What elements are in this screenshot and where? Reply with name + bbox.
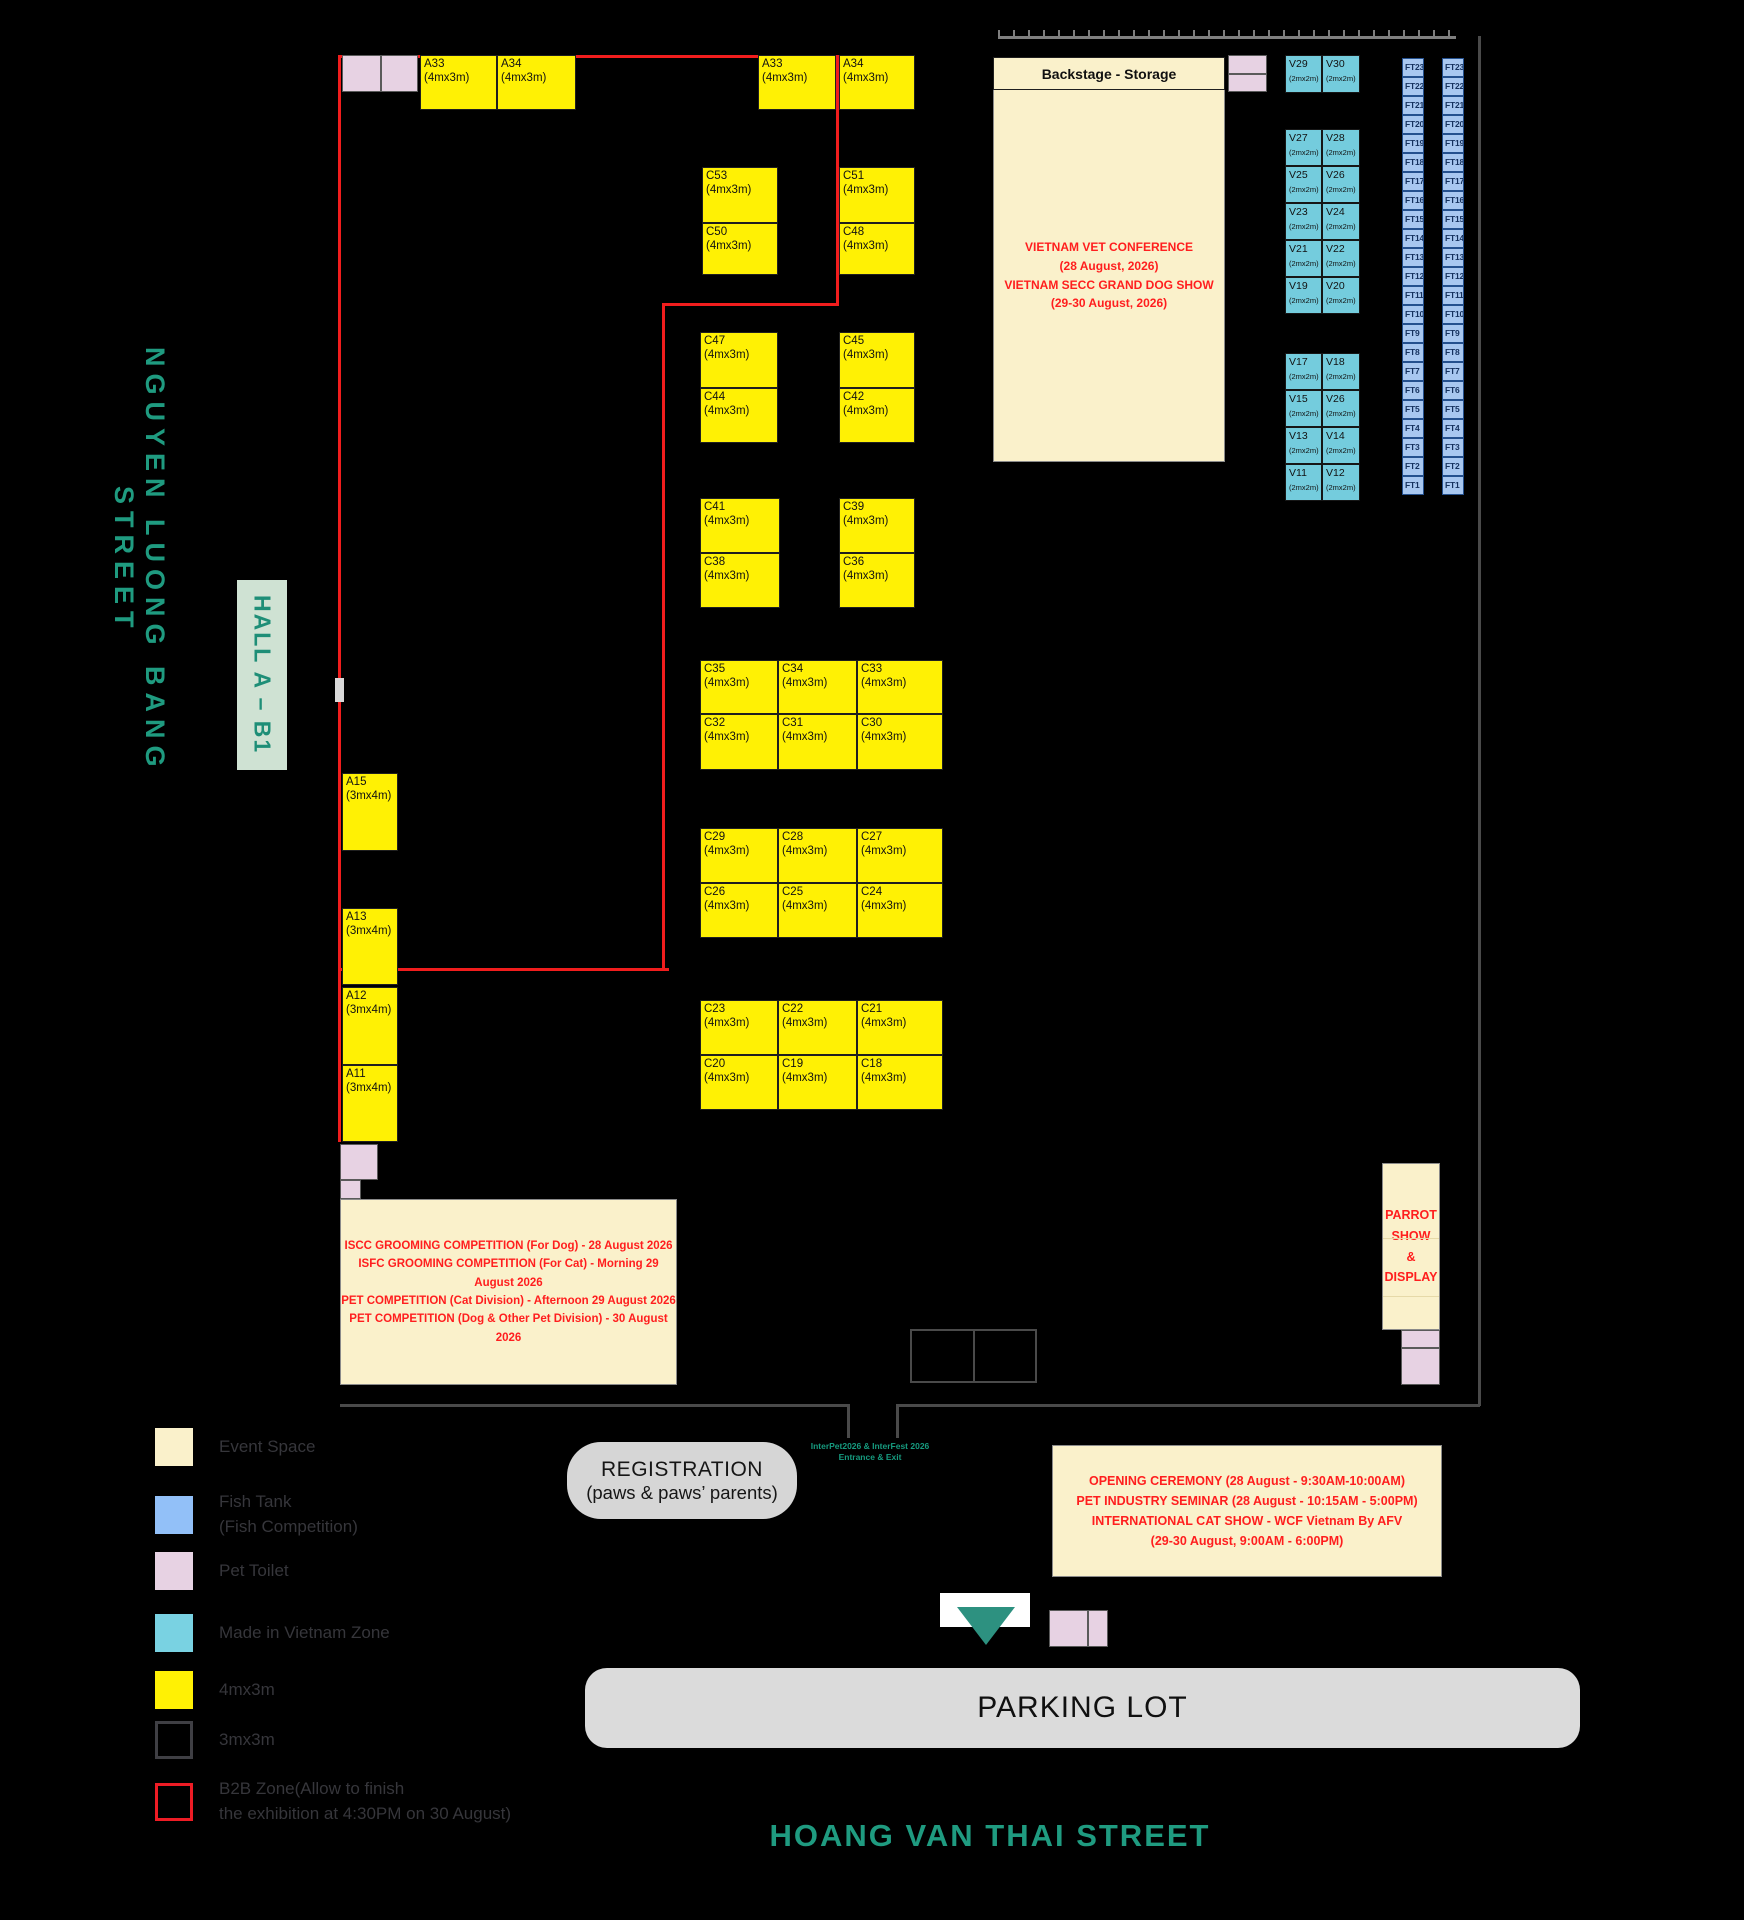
fish-tank-FT13: FT13 xyxy=(1402,248,1424,267)
booth-C31: C31(4mx3m) xyxy=(778,714,857,770)
fish-tank-FT12: FT12 xyxy=(1442,267,1464,286)
booth-C21: C21(4mx3m) xyxy=(857,1000,943,1055)
wall xyxy=(898,1404,1480,1407)
booth-A34: A34(4mx3m) xyxy=(497,55,576,110)
booth-dimension: (2mx2m) xyxy=(1289,296,1320,305)
booth-dimension: (4mx3m) xyxy=(782,731,855,745)
booth-id: A34 xyxy=(501,58,574,72)
legend-item: Pet Toilet xyxy=(155,1552,289,1590)
legend-label: Pet Toilet xyxy=(219,1559,289,1584)
booth-dimension: (4mx3m) xyxy=(861,845,941,859)
booth-V30: V30(2mx2m) xyxy=(1322,55,1360,93)
booth-dimension: (4mx3m) xyxy=(704,349,776,363)
booth-id: V20 xyxy=(1326,280,1358,293)
legend-item: Made in Vietnam Zone xyxy=(155,1614,390,1652)
booth-id: V29 xyxy=(1289,58,1320,71)
booth-id: A34 xyxy=(843,58,913,72)
booth-dimension: (4mx3m) xyxy=(762,72,834,86)
booth-id: A33 xyxy=(762,58,834,72)
booth-C35: C35(4mx3m) xyxy=(700,660,778,714)
booth-V12: V12(2mx2m) xyxy=(1322,464,1360,501)
fish-tank-FT10: FT10 xyxy=(1442,305,1464,324)
booth-C50: C50(4mx3m) xyxy=(702,223,778,275)
booth-dimension: (2mx2m) xyxy=(1289,148,1320,157)
entrance-arrow-icon xyxy=(957,1607,1015,1645)
booth-id: V12 xyxy=(1326,467,1358,480)
booth-dimension: (4mx3m) xyxy=(704,677,776,691)
wall xyxy=(896,1404,899,1438)
booth-dimension: (2mx2m) xyxy=(1289,409,1320,418)
booth-id: V23 xyxy=(1289,206,1320,219)
booth-A33: A33(4mx3m) xyxy=(758,55,836,110)
fish-tank-FT6: FT6 xyxy=(1402,381,1424,400)
booth-dimension: (4mx3m) xyxy=(782,1017,855,1031)
booth-dimension: (4mx3m) xyxy=(782,845,855,859)
booth-dimension: (4mx3m) xyxy=(843,72,913,86)
booth-C27: C27(4mx3m) xyxy=(857,828,943,883)
booth-dimension: (4mx3m) xyxy=(861,731,941,745)
fish-tank-FT5: FT5 xyxy=(1442,400,1464,419)
booth-V18: V18(2mx2m) xyxy=(1322,353,1360,390)
booth-dimension: (2mx2m) xyxy=(1326,483,1358,492)
entrance-booth-cell xyxy=(912,1331,975,1381)
booth-dimension: (2mx2m) xyxy=(1326,74,1358,83)
fish-tank-FT4: FT4 xyxy=(1402,419,1424,438)
booth-A15: A15(3mx4m) xyxy=(342,773,398,851)
booth-dimension: (2mx2m) xyxy=(1289,446,1320,455)
booth-id: C31 xyxy=(782,717,855,731)
legend-swatch xyxy=(155,1783,193,1821)
legend-swatch xyxy=(155,1671,193,1709)
booth-dimension: (4mx3m) xyxy=(704,900,776,914)
booth-id: V22 xyxy=(1326,243,1358,256)
booth-id: V28 xyxy=(1326,132,1358,145)
booth-dimension: (2mx2m) xyxy=(1326,372,1358,381)
booth-V28: V28(2mx2m) xyxy=(1322,129,1360,166)
fish-tank-FT1: FT1 xyxy=(1442,476,1464,495)
pet-toilet xyxy=(1088,1610,1108,1647)
fish-tank-FT21: FT21 xyxy=(1402,96,1424,115)
entrance-booth-cell xyxy=(975,1331,1035,1381)
booth-id: C25 xyxy=(782,886,855,900)
street-bottom-label: HOANG VAN THAI STREET xyxy=(700,1818,1280,1854)
booth-C36: C36(4mx3m) xyxy=(839,553,915,608)
booth-dimension: (2mx2m) xyxy=(1289,372,1320,381)
fish-tank-FT17: FT17 xyxy=(1442,172,1464,191)
fish-tank-FT5: FT5 xyxy=(1402,400,1424,419)
booth-dimension: (2mx2m) xyxy=(1326,296,1358,305)
booth-id: C42 xyxy=(843,391,913,405)
booth-id: V15 xyxy=(1289,393,1320,406)
fish-tank-FT20: FT20 xyxy=(1402,115,1424,134)
fish-tank-FT7: FT7 xyxy=(1402,362,1424,381)
booth-dimension: (4mx3m) xyxy=(704,515,778,529)
booth-C38: C38(4mx3m) xyxy=(700,553,780,608)
fish-tank-FT6: FT6 xyxy=(1442,381,1464,400)
booth-dimension: (4mx3m) xyxy=(782,1072,855,1086)
booth-C41: C41(4mx3m) xyxy=(700,498,780,553)
fish-tank-FT22: FT22 xyxy=(1402,77,1424,96)
wall xyxy=(340,1404,849,1407)
booth-V19: V19(2mx2m) xyxy=(1285,277,1322,314)
registration-subtitle: (paws & paws’ parents) xyxy=(586,1482,778,1504)
fish-tank-FT16: FT16 xyxy=(1402,191,1424,210)
booth-dimension: (2mx2m) xyxy=(1326,409,1358,418)
booth-id: V26 xyxy=(1326,169,1358,182)
booth-id: C23 xyxy=(704,1003,776,1017)
booth-V14: V14(2mx2m) xyxy=(1322,427,1360,464)
booth-id: C18 xyxy=(861,1058,941,1072)
legend-item: B2B Zone(Allow to finish the exhibition … xyxy=(155,1777,511,1826)
fish-tank-FT11: FT11 xyxy=(1402,286,1424,305)
booth-id: C22 xyxy=(782,1003,855,1017)
legend-label: 3mx3m xyxy=(219,1728,275,1753)
parking-lot: PARKING LOT xyxy=(585,1668,1580,1748)
booth-id: C30 xyxy=(861,717,941,731)
fish-tank-FT18: FT18 xyxy=(1402,153,1424,172)
booth-V27: V27(2mx2m) xyxy=(1285,129,1322,166)
legend-swatch xyxy=(155,1496,193,1534)
booth-C34: C34(4mx3m) xyxy=(778,660,857,714)
booth-id: A15 xyxy=(346,776,396,790)
booth-id: C53 xyxy=(706,170,776,184)
booth-dimension: (3mx4m) xyxy=(346,1082,396,1096)
booth-dimension: (4mx3m) xyxy=(424,72,495,86)
entrance-exit-label: InterPet2026 & InterFest 2026 Entrance &… xyxy=(805,1441,935,1463)
booth-id: V21 xyxy=(1289,243,1320,256)
divider xyxy=(1383,1296,1439,1297)
grooming-competition-area: ISCC GROOMING COMPETITION (For Dog) - 28… xyxy=(340,1199,677,1385)
booth-C23: C23(4mx3m) xyxy=(700,1000,778,1055)
booth-C44: C44(4mx3m) xyxy=(700,388,778,443)
booth-id: C47 xyxy=(704,335,776,349)
pet-toilet xyxy=(1401,1348,1440,1385)
wall xyxy=(1478,36,1481,1406)
booth-id: V26 xyxy=(1326,393,1358,406)
fish-tank-FT7: FT7 xyxy=(1442,362,1464,381)
booth-dimension: (4mx3m) xyxy=(861,1072,941,1086)
booth-id: A11 xyxy=(346,1068,396,1082)
booth-V15: V15(2mx2m) xyxy=(1285,390,1322,427)
booth-dimension: (4mx3m) xyxy=(706,240,776,254)
booth-V22: V22(2mx2m) xyxy=(1322,240,1360,277)
opening-ceremony-area: OPENING CEREMONY (28 August - 9:30AM-10:… xyxy=(1052,1445,1442,1577)
fish-tank-FT23: FT23 xyxy=(1402,58,1424,77)
booth-A33: A33(4mx3m) xyxy=(420,55,497,110)
booth-dimension: (4mx3m) xyxy=(704,1017,776,1031)
booth-dimension: (4mx3m) xyxy=(704,1072,776,1086)
booth-dimension: (2mx2m) xyxy=(1289,222,1320,231)
booth-C51: C51(4mx3m) xyxy=(839,167,915,223)
booth-id: C39 xyxy=(843,501,913,515)
booth-dimension: (4mx3m) xyxy=(861,677,941,691)
booth-id: V17 xyxy=(1289,356,1320,369)
fish-tank-FT9: FT9 xyxy=(1402,324,1424,343)
booth-dimension: (4mx3m) xyxy=(861,900,941,914)
booth-C24: C24(4mx3m) xyxy=(857,883,943,938)
legend-label: Made in Vietnam Zone xyxy=(219,1621,390,1646)
booth-dimension: (4mx3m) xyxy=(704,570,778,584)
booth-dimension: (4mx3m) xyxy=(704,845,776,859)
booth-id: A33 xyxy=(424,58,495,72)
booth-C28: C28(4mx3m) xyxy=(778,828,857,883)
booth-id: C35 xyxy=(704,663,776,677)
fish-tank-FT19: FT19 xyxy=(1442,134,1464,153)
booth-id: A12 xyxy=(346,990,396,1004)
parrot-show-label: PARROT SHOW & DISPLAY xyxy=(1384,1205,1437,1288)
b2b-zone-line xyxy=(338,55,341,1142)
b2b-zone-line xyxy=(662,303,665,971)
booth-id: V11 xyxy=(1289,467,1320,480)
booth-C39: C39(4mx3m) xyxy=(839,498,915,553)
legend-swatch xyxy=(155,1721,193,1759)
fish-tank-FT14: FT14 xyxy=(1402,229,1424,248)
booth-C19: C19(4mx3m) xyxy=(778,1055,857,1110)
booth-id: C45 xyxy=(843,335,913,349)
registration-desk: REGISTRATION (paws & paws’ parents) xyxy=(567,1442,797,1519)
booth-dimension: (4mx3m) xyxy=(843,240,913,254)
booth-dimension: (4mx3m) xyxy=(782,677,855,691)
booth-V23: V23(2mx2m) xyxy=(1285,203,1322,240)
booth-dimension: (4mx3m) xyxy=(704,731,776,745)
booth-V26: V26(2mx2m) xyxy=(1322,166,1360,203)
fish-tank-FT4: FT4 xyxy=(1442,419,1464,438)
pet-toilet xyxy=(1228,74,1267,92)
fish-tank-FT12: FT12 xyxy=(1402,267,1424,286)
booth-C47: C47(4mx3m) xyxy=(700,332,778,388)
booth-C33: C33(4mx3m) xyxy=(857,660,943,714)
booth-id: C24 xyxy=(861,886,941,900)
booth-dimension: (2mx2m) xyxy=(1326,185,1358,194)
fish-tank-FT16: FT16 xyxy=(1442,191,1464,210)
booth-dimension: (4mx3m) xyxy=(706,184,776,198)
fish-tank-FT9: FT9 xyxy=(1442,324,1464,343)
fish-tank-FT8: FT8 xyxy=(1442,343,1464,362)
booth-id: V27 xyxy=(1289,132,1320,145)
booth-dimension: (4mx3m) xyxy=(861,1017,941,1031)
booth-C42: C42(4mx3m) xyxy=(839,388,915,443)
booth-A12: A12(3mx4m) xyxy=(342,987,398,1065)
booth-id: C36 xyxy=(843,556,913,570)
booth-id: V25 xyxy=(1289,169,1320,182)
booth-id: V19 xyxy=(1289,280,1320,293)
fish-tank-FT14: FT14 xyxy=(1442,229,1464,248)
booth-V13: V13(2mx2m) xyxy=(1285,427,1322,464)
booth-dimension: (2mx2m) xyxy=(1326,259,1358,268)
legend-item: 4mx3m xyxy=(155,1671,275,1709)
booth-id: C27 xyxy=(861,831,941,845)
pet-toilet xyxy=(342,55,381,92)
booth-V20: V20(2mx2m) xyxy=(1322,277,1360,314)
fish-tank-FT20: FT20 xyxy=(1442,115,1464,134)
booth-id: C26 xyxy=(704,886,776,900)
legend-label: 4mx3m xyxy=(219,1678,275,1703)
street-left-label: NGUYEN LUONG BANG STREET xyxy=(118,330,170,790)
registration-title: REGISTRATION xyxy=(601,1458,763,1482)
backstage-storage-box: Backstage - Storage xyxy=(993,57,1225,90)
fish-tank-FT23: FT23 xyxy=(1442,58,1464,77)
exhibition-floor-plan: NGUYEN LUONG BANG STREET HALL A – B1 Bac… xyxy=(0,0,1744,1920)
booth-id: C41 xyxy=(704,501,778,515)
legend-swatch xyxy=(155,1552,193,1590)
booth-A11: A11(3mx4m) xyxy=(342,1065,398,1142)
fish-tank-FT21: FT21 xyxy=(1442,96,1464,115)
booth-dimension: (2mx2m) xyxy=(1289,74,1320,83)
booth-dimension: (4mx3m) xyxy=(843,515,913,529)
booth-V17: V17(2mx2m) xyxy=(1285,353,1322,390)
booth-V25: V25(2mx2m) xyxy=(1285,166,1322,203)
legend-label: Fish Tank (Fish Competition) xyxy=(219,1490,358,1539)
vet-conference-area: VIETNAM VET CONFERENCE (28 August, 2026)… xyxy=(993,90,1225,462)
booth-id: C44 xyxy=(704,391,776,405)
booth-C20: C20(4mx3m) xyxy=(700,1055,778,1110)
fish-tank-FT8: FT8 xyxy=(1402,343,1424,362)
booth-C30: C30(4mx3m) xyxy=(857,714,943,770)
booth-id: C32 xyxy=(704,717,776,731)
booth-dimension: (4mx3m) xyxy=(782,900,855,914)
booth-id: V14 xyxy=(1326,430,1358,443)
booth-dimension: (4mx3m) xyxy=(501,72,574,86)
booth-id: C50 xyxy=(706,226,776,240)
pet-toilet xyxy=(1049,1610,1088,1647)
booth-dimension: (2mx2m) xyxy=(1326,148,1358,157)
pet-toilet xyxy=(1228,55,1267,74)
fish-tank-FT19: FT19 xyxy=(1402,134,1424,153)
b2b-zone-line xyxy=(662,303,839,306)
booth-id: A13 xyxy=(346,911,396,925)
fish-tank-FT3: FT3 xyxy=(1402,438,1424,457)
fish-tank-FT10: FT10 xyxy=(1402,305,1424,324)
booth-C25: C25(4mx3m) xyxy=(778,883,857,938)
pet-toilet xyxy=(340,1180,361,1199)
entrance-booths xyxy=(910,1329,1037,1383)
legend-item: Fish Tank (Fish Competition) xyxy=(155,1490,358,1539)
fish-tank-FT17: FT17 xyxy=(1402,172,1424,191)
booth-dimension: (2mx2m) xyxy=(1326,222,1358,231)
legend-swatch xyxy=(155,1614,193,1652)
top-ruler xyxy=(998,30,1456,39)
booth-id: C29 xyxy=(704,831,776,845)
booth-dimension: (3mx4m) xyxy=(346,925,396,939)
booth-id: C48 xyxy=(843,226,913,240)
hall-label: HALL A – B1 xyxy=(237,580,287,770)
booth-C48: C48(4mx3m) xyxy=(839,223,915,275)
booth-C26: C26(4mx3m) xyxy=(700,883,778,938)
fish-tank-FT1: FT1 xyxy=(1402,476,1424,495)
booth-dimension: (3mx4m) xyxy=(346,1004,396,1018)
booth-C45: C45(4mx3m) xyxy=(839,332,915,388)
booth-id: V30 xyxy=(1326,58,1358,71)
booth-dimension: (3mx4m) xyxy=(346,790,396,804)
pet-toilet xyxy=(381,55,418,92)
door-gap xyxy=(335,678,344,702)
booth-dimension: (2mx2m) xyxy=(1289,259,1320,268)
parrot-show-area: PARROT SHOW & DISPLAY xyxy=(1382,1163,1440,1330)
booth-dimension: (4mx3m) xyxy=(843,349,913,363)
booth-id: C33 xyxy=(861,663,941,677)
pet-toilet xyxy=(340,1144,378,1180)
booth-dimension: (4mx3m) xyxy=(843,405,913,419)
booth-V21: V21(2mx2m) xyxy=(1285,240,1322,277)
booth-id: C19 xyxy=(782,1058,855,1072)
legend-item: 3mx3m xyxy=(155,1721,275,1759)
legend-item: Event Space xyxy=(155,1428,315,1466)
fish-tank-FT2: FT2 xyxy=(1402,457,1424,476)
booth-C22: C22(4mx3m) xyxy=(778,1000,857,1055)
booth-id: C21 xyxy=(861,1003,941,1017)
booth-id: V18 xyxy=(1326,356,1358,369)
booth-id: C20 xyxy=(704,1058,776,1072)
booth-C32: C32(4mx3m) xyxy=(700,714,778,770)
fish-tank-FT22: FT22 xyxy=(1442,77,1464,96)
booth-A13: A13(3mx4m) xyxy=(342,908,398,985)
booth-dimension: (2mx2m) xyxy=(1289,483,1320,492)
divider xyxy=(1383,1238,1439,1239)
booth-V29: V29(2mx2m) xyxy=(1285,55,1322,93)
booth-dimension: (4mx3m) xyxy=(704,405,776,419)
legend-swatch xyxy=(155,1428,193,1466)
booth-id: V24 xyxy=(1326,206,1358,219)
fish-tank-FT18: FT18 xyxy=(1442,153,1464,172)
booth-dimension: (4mx3m) xyxy=(843,184,913,198)
booth-dimension: (2mx2m) xyxy=(1289,185,1320,194)
legend-label: Event Space xyxy=(219,1435,315,1460)
booth-V24: V24(2mx2m) xyxy=(1322,203,1360,240)
booth-A34: A34(4mx3m) xyxy=(839,55,915,110)
fish-tank-FT15: FT15 xyxy=(1402,210,1424,229)
booth-V11: V11(2mx2m) xyxy=(1285,464,1322,501)
legend-label: B2B Zone(Allow to finish the exhibition … xyxy=(219,1777,511,1826)
fish-tank-FT15: FT15 xyxy=(1442,210,1464,229)
booth-V26: V26(2mx2m) xyxy=(1322,390,1360,427)
fish-tank-FT2: FT2 xyxy=(1442,457,1464,476)
booth-id: C38 xyxy=(704,556,778,570)
booth-dimension: (2mx2m) xyxy=(1326,446,1358,455)
fish-tank-FT13: FT13 xyxy=(1442,248,1464,267)
booth-dimension: (4mx3m) xyxy=(843,570,913,584)
fish-tank-FT11: FT11 xyxy=(1442,286,1464,305)
booth-C29: C29(4mx3m) xyxy=(700,828,778,883)
wall xyxy=(847,1404,850,1438)
booth-id: C28 xyxy=(782,831,855,845)
fish-tank-FT3: FT3 xyxy=(1442,438,1464,457)
pet-toilet xyxy=(1401,1330,1440,1348)
booth-id: V13 xyxy=(1289,430,1320,443)
booth-id: C34 xyxy=(782,663,855,677)
booth-C53: C53(4mx3m) xyxy=(702,167,778,223)
booth-C18: C18(4mx3m) xyxy=(857,1055,943,1110)
booth-id: C51 xyxy=(843,170,913,184)
